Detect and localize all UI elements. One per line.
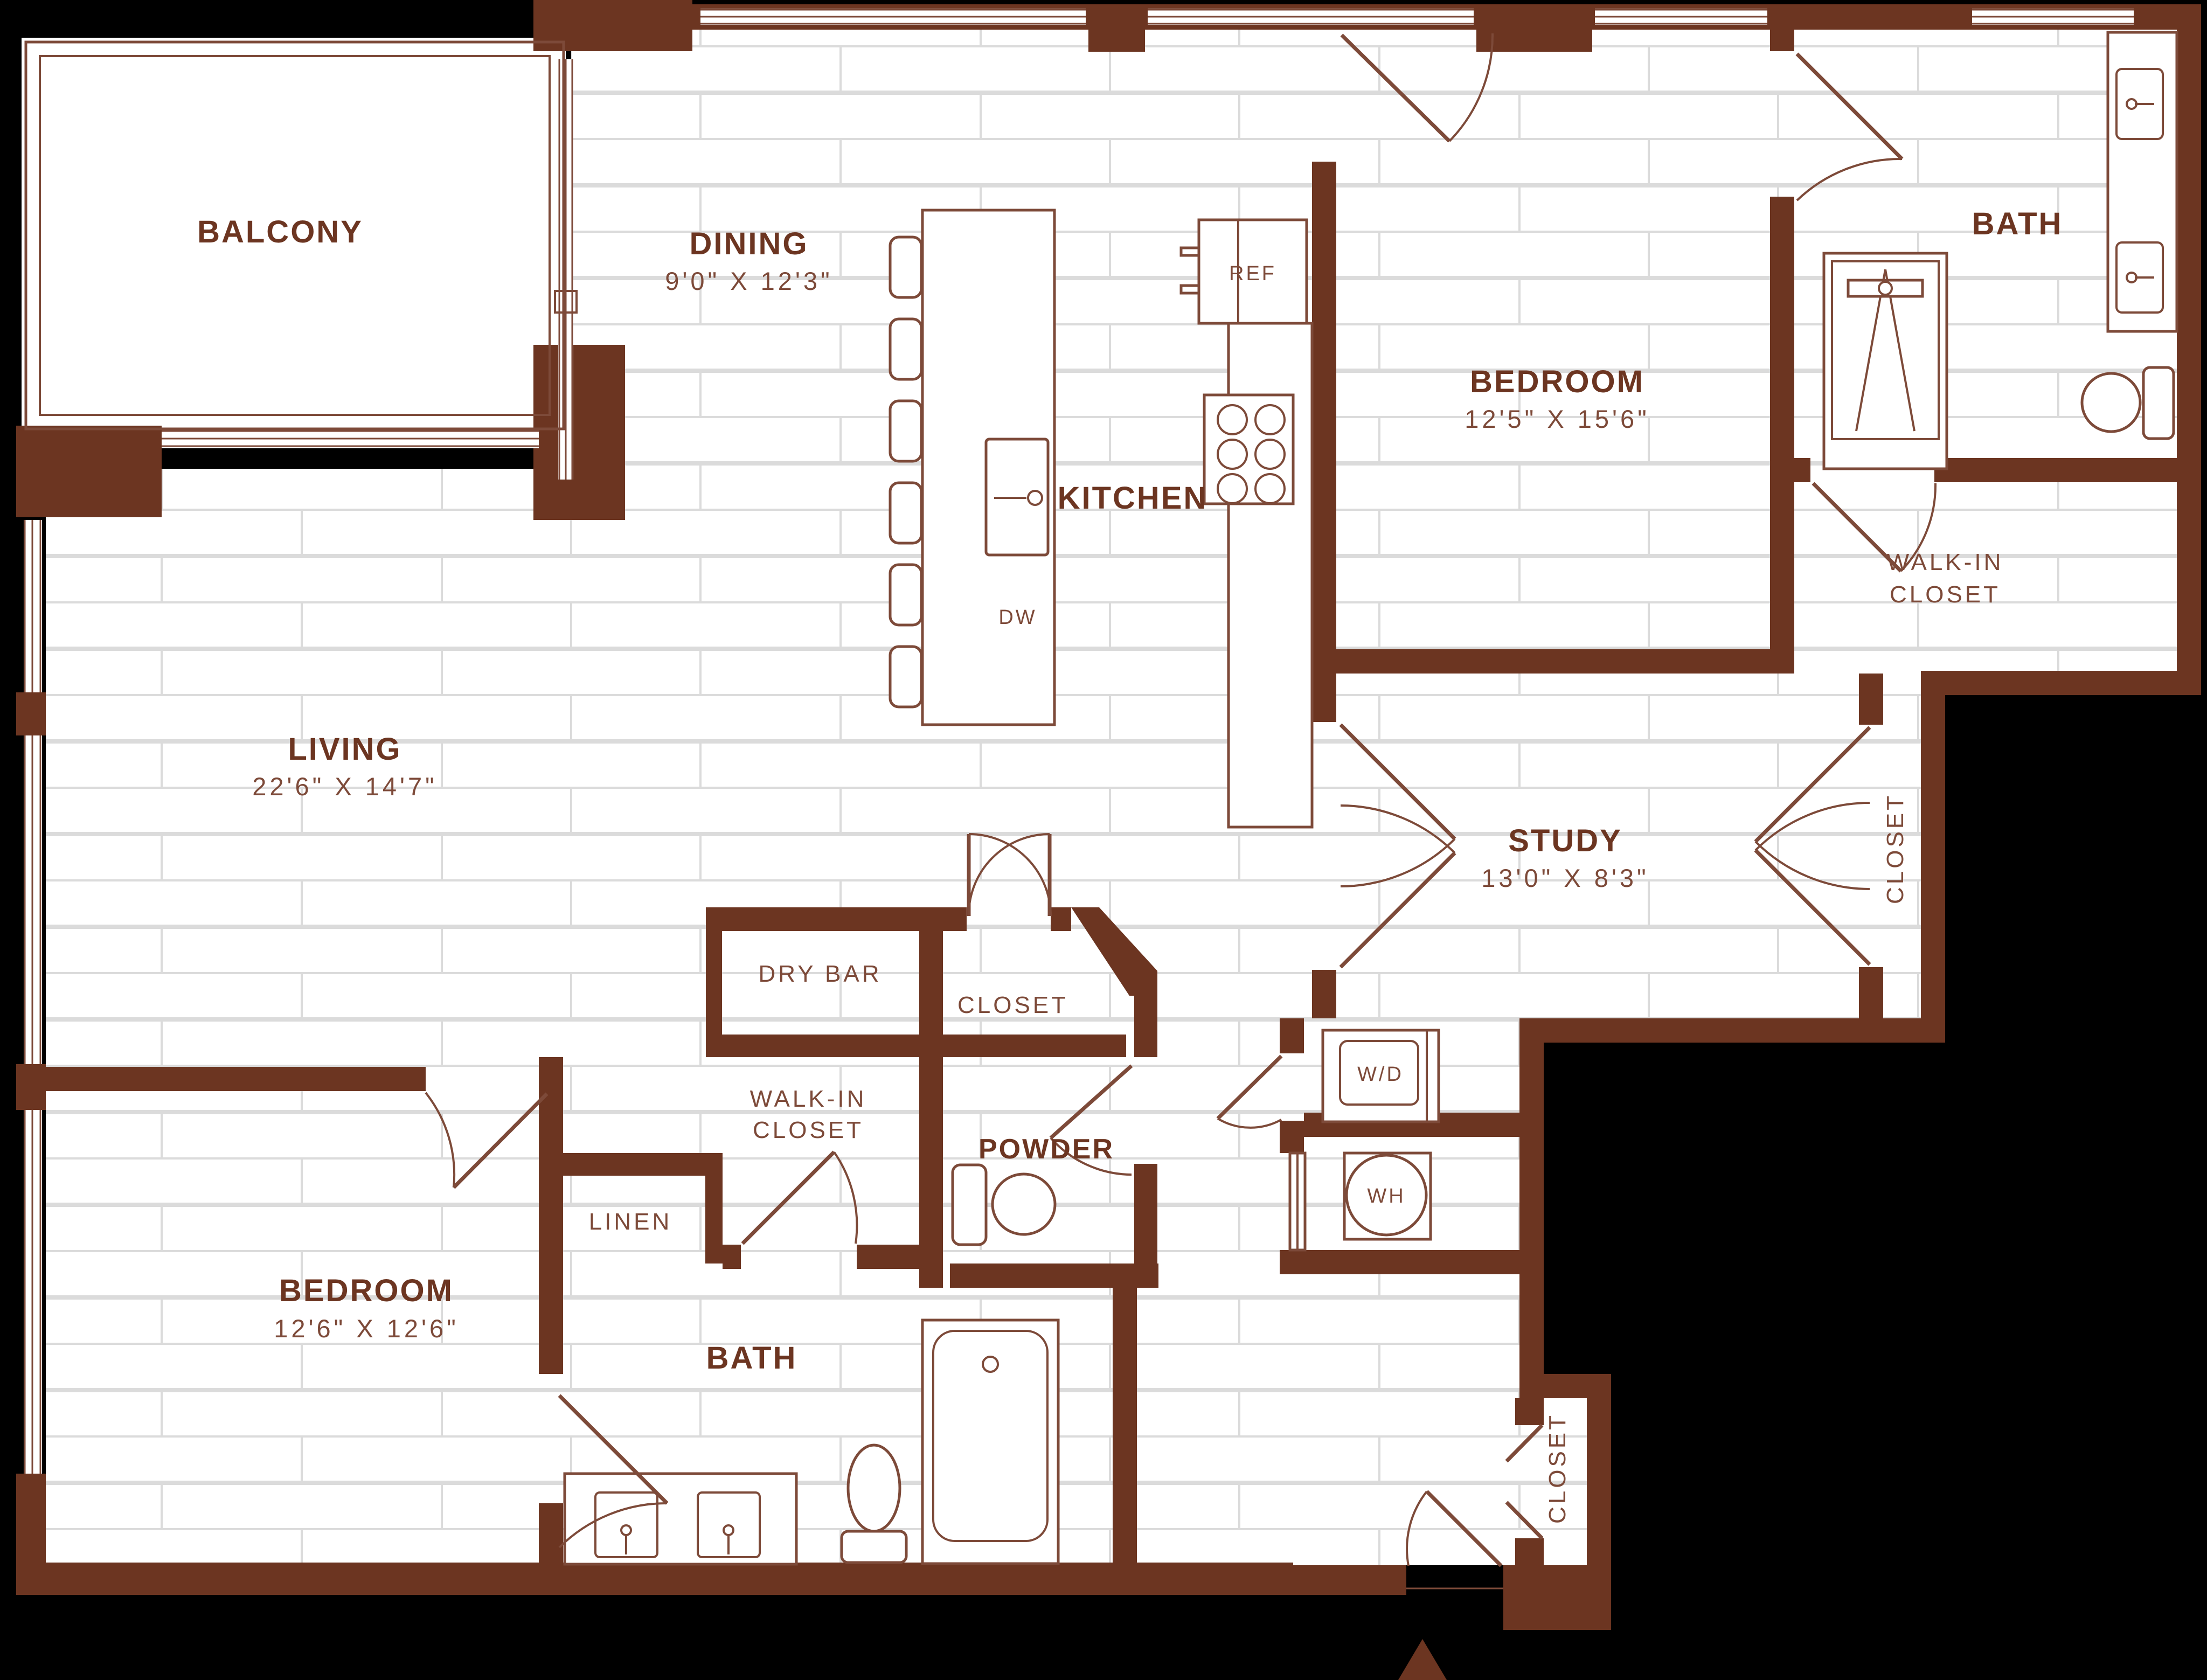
bath2-shower: [1824, 253, 1947, 469]
kitchen-label: KITCHEN: [1058, 481, 1208, 516]
bedroom1-dims: 12'6" X 12'6": [274, 1314, 459, 1343]
study-dims: 13'0" X 8'3": [1481, 864, 1649, 892]
study-closet-label: CLOSET: [1882, 793, 1908, 904]
walkin2-label-line2: CLOSET: [1890, 581, 2001, 608]
linen-label: LINEN: [589, 1209, 672, 1235]
range-cooktop: [1204, 395, 1293, 504]
balcony-sliding-door: [555, 59, 577, 480]
left-window-living-2: [24, 735, 42, 1064]
entry-closet-label: CLOSET: [1544, 1413, 1571, 1524]
refrigerator-label: REF: [1229, 262, 1276, 285]
walkin1-label-line2: CLOSET: [753, 1117, 864, 1143]
water-heater-label: WH: [1367, 1185, 1405, 1207]
bath1-label: BATH: [706, 1341, 797, 1376]
hall-closet-label: CLOSET: [957, 992, 1068, 1018]
floor-plan-page: BALCONY DINING 9'0" X 12'3" KITCHEN BEDR…: [0, 0, 2207, 1680]
walkin2-label-line1: WALK-IN: [1887, 549, 2004, 575]
bath1-tub: [922, 1320, 1058, 1564]
left-window-bedroom: [24, 1110, 42, 1474]
island-sink: [986, 439, 1048, 555]
dining-dims: 9'0" X 12'3": [665, 267, 832, 295]
bath2-vanity: [2108, 32, 2177, 331]
bedroom2-label: BEDROOM: [1470, 364, 1644, 399]
floor-plan-drawing: BALCONY DINING 9'0" X 12'3" KITCHEN BEDR…: [0, 0, 2207, 1680]
dining-label: DINING: [690, 226, 809, 261]
top-window-dining: [700, 9, 1086, 25]
powder-label: POWDER: [978, 1134, 1114, 1165]
washer-dryer-label: W/D: [1357, 1063, 1404, 1086]
top-window-bath: [1972, 9, 2134, 25]
top-window-bedroom: [1595, 9, 1767, 25]
top-window-kitchen: [1148, 9, 1474, 25]
balcony-rail: [162, 430, 539, 448]
bedroom1-label: BEDROOM: [279, 1273, 454, 1308]
living-dims: 22'6" X 14'7": [252, 772, 438, 801]
dry-bar-label: DRY BAR: [758, 961, 882, 987]
study-label: STUDY: [1508, 823, 1622, 858]
wh-door: [1290, 1153, 1305, 1250]
living-label: LIVING: [288, 732, 401, 767]
bedroom2-dims: 12'5" X 15'6": [1465, 405, 1650, 433]
bath2-toilet: [2082, 367, 2174, 439]
left-window-living-1: [24, 520, 42, 692]
balcony-label: BALCONY: [197, 214, 363, 249]
walkin1-label-line1: WALK-IN: [750, 1086, 867, 1112]
dishwasher-label: DW: [998, 606, 1037, 629]
bath2-label: BATH: [1972, 206, 2063, 241]
